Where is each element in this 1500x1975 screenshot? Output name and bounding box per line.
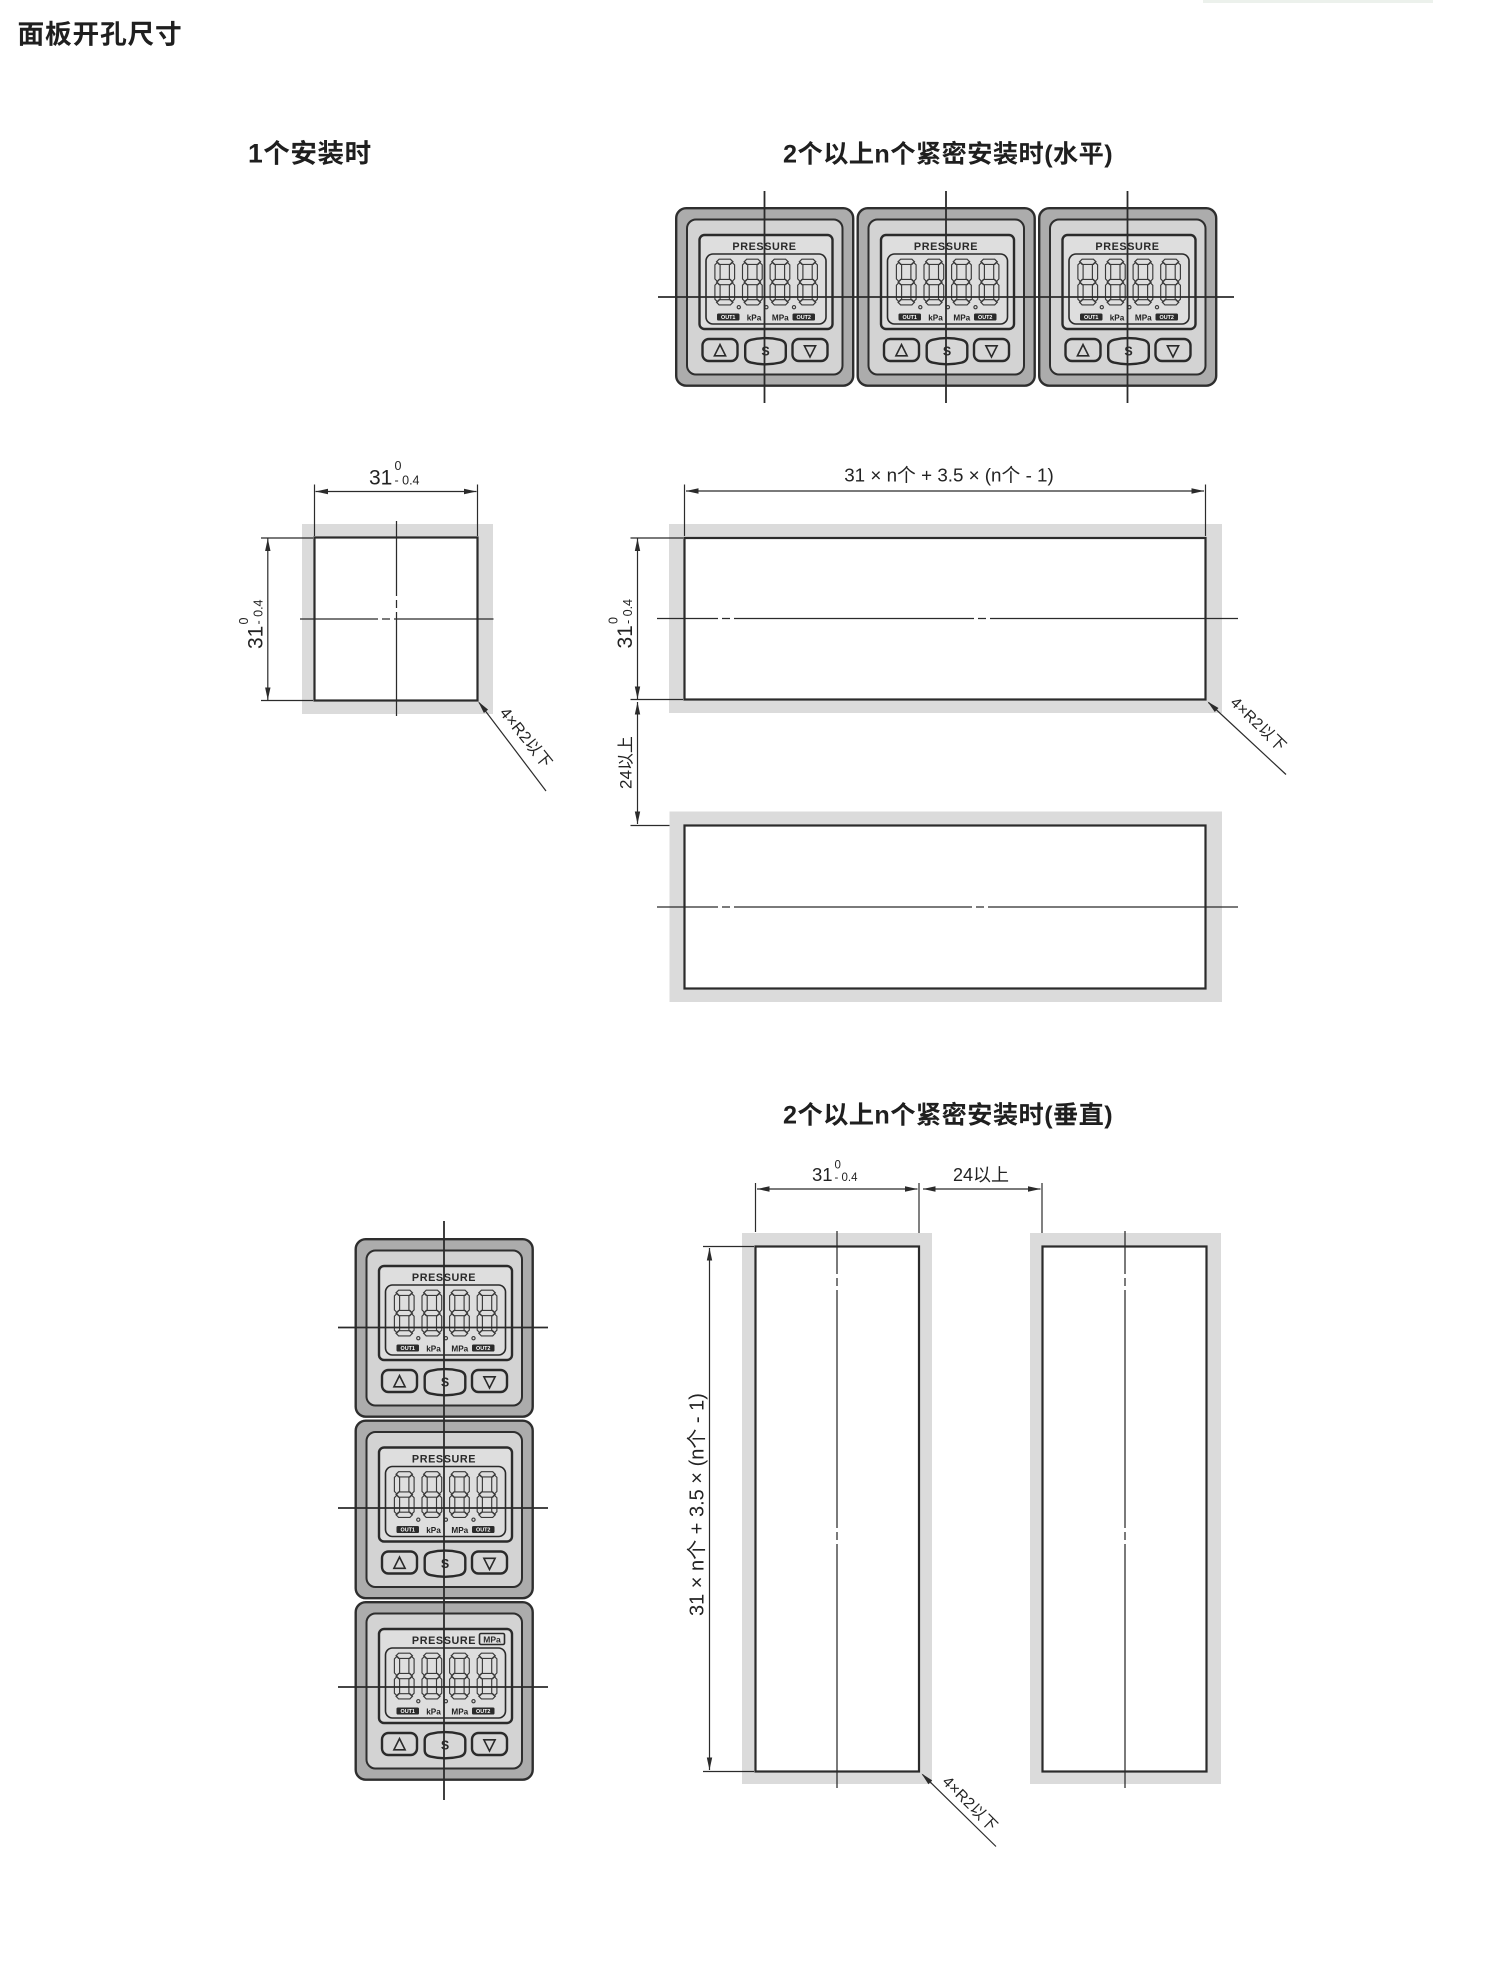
svg-text:- 0.4: - 0.4	[395, 474, 420, 488]
svg-text:24: 24	[617, 770, 636, 789]
svg-text:(n: (n	[687, 1449, 709, 1467]
svg-text:-: -	[1026, 465, 1032, 486]
svg-text:4×R2: 4×R2	[496, 705, 534, 747]
svg-text:- 0.4: - 0.4	[835, 1172, 859, 1184]
svg-text:kPa: kPa	[426, 1344, 441, 1353]
svg-text:(: (	[1044, 141, 1053, 169]
svg-text:OUT2: OUT2	[797, 315, 811, 321]
svg-text:4×R2: 4×R2	[939, 1773, 978, 1812]
svg-text:0: 0	[237, 618, 251, 625]
svg-text:OUT1: OUT1	[1084, 315, 1098, 321]
svg-text:24: 24	[953, 1165, 973, 1185]
svg-text:n: n	[687, 1560, 709, 1571]
svg-text:0: 0	[835, 1160, 841, 1172]
svg-text:OUT1: OUT1	[401, 1346, 415, 1352]
svg-text:OUT2: OUT2	[476, 1709, 490, 1715]
svg-text:S: S	[943, 345, 951, 359]
svg-text:kPa: kPa	[747, 313, 762, 322]
svg-text:S: S	[441, 1739, 449, 1753]
svg-text:(: (	[1044, 1102, 1053, 1130]
svg-text:MPa: MPa	[451, 1526, 468, 1535]
svg-text:31: 31	[687, 1594, 709, 1616]
svg-text:1: 1	[248, 139, 263, 169]
svg-text:3.5: 3.5	[937, 465, 963, 486]
svg-text:kPa: kPa	[426, 1707, 441, 1716]
svg-text:S: S	[441, 1376, 449, 1390]
svg-text:kPa: kPa	[928, 313, 943, 322]
svg-text:×: ×	[969, 465, 980, 486]
svg-text:2: 2	[783, 1102, 797, 1130]
svg-text:31: 31	[614, 625, 637, 648]
svg-text:MPa: MPa	[451, 1344, 468, 1353]
svg-text:OUT2: OUT2	[476, 1528, 490, 1534]
svg-text:): )	[1104, 141, 1113, 169]
svg-text:0: 0	[395, 459, 402, 473]
svg-text:MPa: MPa	[451, 1707, 468, 1716]
svg-text:2: 2	[783, 141, 797, 169]
svg-text:OUT2: OUT2	[978, 315, 992, 321]
svg-text:1): 1)	[1037, 465, 1054, 486]
svg-text:4×R2: 4×R2	[1227, 694, 1267, 733]
svg-text:MPa: MPa	[483, 1634, 501, 1644]
svg-text:n: n	[874, 141, 890, 169]
svg-text:×: ×	[687, 1472, 709, 1484]
svg-text:- 0.4: - 0.4	[621, 599, 635, 624]
svg-text:+: +	[921, 465, 932, 486]
svg-text:- 0.4: - 0.4	[252, 599, 266, 624]
svg-text:(n: (n	[985, 465, 1002, 486]
svg-text:kPa: kPa	[1110, 313, 1125, 322]
svg-text:): )	[1104, 1102, 1113, 1130]
svg-text:S: S	[1124, 345, 1132, 359]
svg-text:31: 31	[844, 465, 865, 486]
svg-text:OUT1: OUT1	[401, 1528, 415, 1534]
svg-text:1): 1)	[687, 1393, 709, 1411]
svg-text:×: ×	[870, 465, 881, 486]
svg-text:×: ×	[687, 1577, 709, 1589]
svg-text:-: -	[687, 1416, 709, 1423]
svg-text:0: 0	[607, 617, 621, 624]
svg-text:S: S	[761, 345, 769, 359]
svg-text:n: n	[887, 465, 897, 486]
svg-text:OUT2: OUT2	[476, 1346, 490, 1352]
svg-text:MPa: MPa	[772, 313, 789, 322]
svg-text:n: n	[874, 1102, 890, 1130]
svg-text:OUT1: OUT1	[903, 315, 917, 321]
svg-text:OUT1: OUT1	[721, 315, 735, 321]
svg-text:S: S	[441, 1557, 449, 1571]
svg-text:31: 31	[369, 467, 392, 490]
svg-text:31: 31	[245, 626, 268, 649]
svg-text:MPa: MPa	[1135, 313, 1152, 322]
svg-text:kPa: kPa	[426, 1526, 441, 1535]
svg-text:OUT2: OUT2	[1160, 315, 1174, 321]
svg-text:OUT1: OUT1	[401, 1709, 415, 1715]
svg-text:+: +	[687, 1523, 709, 1535]
svg-text:MPa: MPa	[953, 313, 970, 322]
svg-text:3.5: 3.5	[687, 1489, 709, 1517]
svg-text:31: 31	[812, 1164, 833, 1185]
